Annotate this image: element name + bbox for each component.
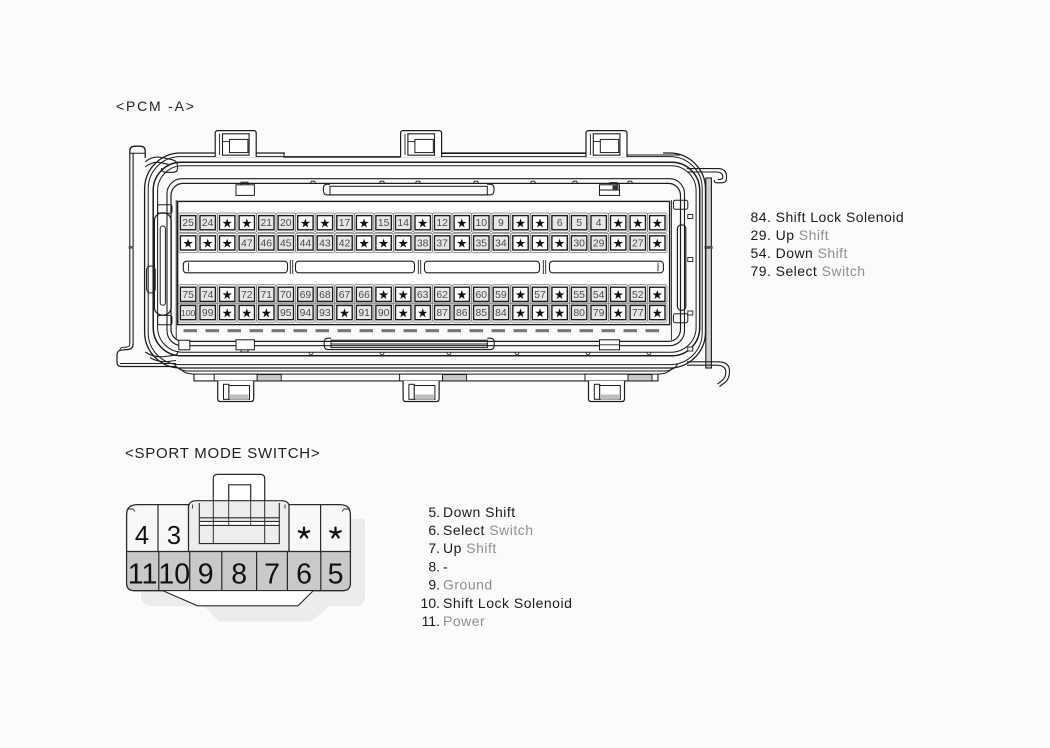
svg-text:4: 4	[596, 218, 602, 229]
svg-text:80: 80	[573, 308, 585, 319]
svg-text:4: 4	[135, 522, 149, 550]
svg-text:37: 37	[436, 238, 448, 249]
svg-text:90: 90	[378, 308, 390, 319]
svg-text:20: 20	[280, 218, 292, 229]
svg-text:7.: 7.	[428, 540, 440, 556]
svg-text:77: 77	[632, 308, 644, 319]
svg-text:5.: 5.	[428, 504, 440, 520]
svg-text:52: 52	[632, 290, 644, 301]
svg-text:24: 24	[202, 218, 214, 229]
svg-text:21: 21	[261, 218, 273, 229]
svg-text:5: 5	[576, 218, 582, 229]
svg-text:71: 71	[261, 290, 273, 301]
svg-text:10: 10	[476, 218, 488, 229]
svg-text:57: 57	[534, 290, 546, 301]
svg-text:6.: 6.	[428, 522, 440, 538]
svg-text:Select Switch: Select Switch	[443, 522, 534, 538]
svg-text:29. Up Shift: 29. Up Shift	[751, 227, 830, 243]
svg-text:9.: 9.	[428, 577, 440, 593]
svg-text:79: 79	[593, 308, 605, 319]
svg-text:67: 67	[339, 290, 351, 301]
svg-text:34: 34	[495, 238, 507, 249]
svg-text:63: 63	[417, 290, 429, 301]
svg-text:8.: 8.	[428, 558, 440, 574]
svg-text:14: 14	[397, 218, 409, 229]
svg-text:12: 12	[436, 218, 448, 229]
svg-text:Shift Lock Solenoid: Shift Lock Solenoid	[443, 595, 572, 611]
svg-text:68: 68	[319, 290, 331, 301]
svg-text:Power: Power	[443, 613, 485, 629]
svg-text:45: 45	[280, 238, 292, 249]
svg-text:10: 10	[158, 559, 190, 591]
svg-text:11: 11	[128, 559, 158, 591]
svg-text:85: 85	[476, 308, 488, 319]
svg-text:62: 62	[436, 290, 448, 301]
svg-text:70: 70	[280, 290, 292, 301]
svg-text:9: 9	[498, 218, 504, 229]
svg-text:69: 69	[300, 290, 312, 301]
svg-text:91: 91	[358, 308, 370, 319]
svg-text:87: 87	[436, 308, 448, 319]
svg-text:54. Down Shift: 54. Down Shift	[751, 245, 848, 261]
svg-text:84: 84	[495, 308, 507, 319]
svg-text:5: 5	[328, 559, 344, 591]
svg-text:60: 60	[476, 290, 488, 301]
svg-text:Down Shift: Down Shift	[443, 504, 516, 520]
svg-text:79. Select Switch: 79. Select Switch	[751, 263, 866, 279]
svg-text:9: 9	[198, 559, 214, 591]
svg-text:<PCM -A>: <PCM -A>	[116, 98, 196, 114]
svg-text:35: 35	[476, 238, 488, 249]
svg-text:11.: 11.	[422, 613, 440, 629]
svg-text:66: 66	[358, 290, 370, 301]
svg-text:38: 38	[417, 238, 429, 249]
svg-text:75: 75	[182, 290, 194, 301]
svg-text:25: 25	[182, 218, 194, 229]
svg-text:10.: 10.	[421, 595, 440, 611]
svg-text:94: 94	[300, 308, 312, 319]
svg-text:55: 55	[573, 290, 585, 301]
svg-text:74: 74	[202, 290, 214, 301]
svg-text:93: 93	[319, 308, 331, 319]
svg-text:Up Shift: Up Shift	[443, 540, 497, 556]
svg-text:99: 99	[202, 308, 214, 319]
svg-text:54: 54	[593, 290, 605, 301]
svg-text:29: 29	[593, 238, 605, 249]
svg-text:44: 44	[300, 238, 312, 249]
svg-text:3: 3	[167, 522, 181, 550]
svg-text:-: -	[443, 558, 448, 574]
svg-text:<SPORT MODE SWITCH>: <SPORT MODE SWITCH>	[125, 445, 320, 462]
svg-text:6: 6	[557, 218, 563, 229]
svg-text:8: 8	[231, 559, 247, 591]
svg-text:42: 42	[339, 238, 351, 249]
svg-text:Ground: Ground	[443, 577, 493, 593]
svg-text:95: 95	[280, 308, 292, 319]
svg-text:59: 59	[495, 290, 507, 301]
svg-text:84. Shift Lock Solenoid: 84. Shift Lock Solenoid	[751, 209, 905, 225]
svg-text:15: 15	[378, 218, 390, 229]
svg-text:47: 47	[241, 238, 253, 249]
svg-text:27: 27	[632, 238, 644, 249]
svg-text:7: 7	[264, 559, 280, 591]
svg-text:17: 17	[339, 218, 351, 229]
svg-text:6: 6	[296, 559, 312, 591]
svg-text:30: 30	[573, 238, 585, 249]
svg-text:100: 100	[181, 308, 196, 318]
svg-text:43: 43	[319, 238, 331, 249]
svg-text:46: 46	[261, 238, 273, 249]
svg-text:86: 86	[456, 308, 468, 319]
svg-text:72: 72	[241, 290, 253, 301]
